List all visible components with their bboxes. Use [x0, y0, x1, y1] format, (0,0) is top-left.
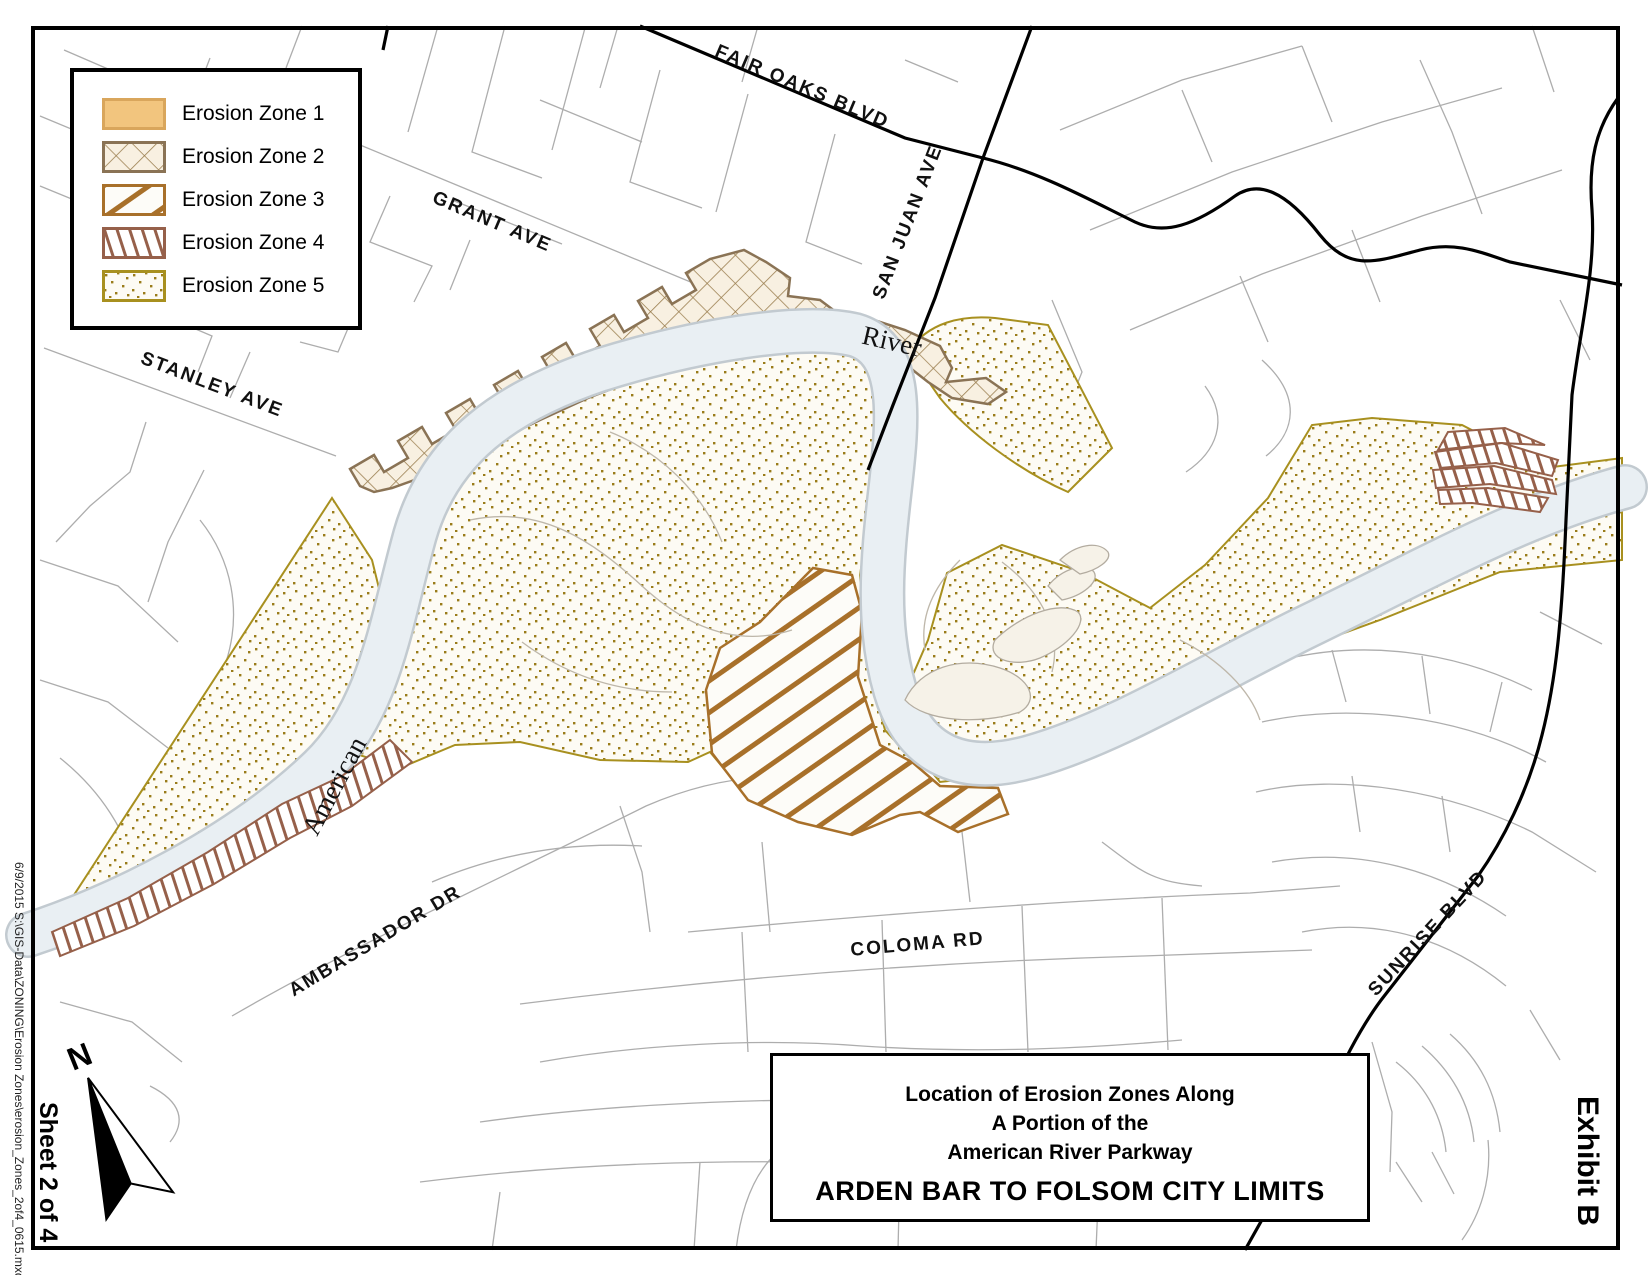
filepath-label: 6/9/2015 S:\GIS-Data\ZONING\Erosion Zone… — [12, 862, 26, 1275]
exhibit-label: Exhibit B — [1570, 1096, 1604, 1226]
title-block: Location of Erosion Zones Along A Portio… — [770, 1053, 1370, 1222]
title-line-2: A Portion of the — [773, 1109, 1367, 1138]
title-line-3: American River Parkway — [773, 1138, 1367, 1167]
legend-label: Erosion Zone 3 — [182, 188, 324, 212]
title-main: ARDEN BAR TO FOLSOM CITY LIMITS — [773, 1176, 1367, 1207]
legend-item-zone4: Erosion Zone 4 — [102, 221, 358, 264]
map-page: FAIR OAKS BLVD SAN JUAN AVE GRANT AVE ST… — [0, 0, 1650, 1275]
zone2-swatch-icon — [102, 141, 166, 173]
zone5-swatch-icon — [102, 270, 166, 302]
legend-label: Erosion Zone 4 — [182, 231, 324, 255]
legend-label: Erosion Zone 1 — [182, 102, 324, 126]
legend-item-zone3: Erosion Zone 3 — [102, 178, 358, 221]
legend-box: Erosion Zone 1 Erosion Zone 2 Erosion Zo… — [70, 68, 362, 330]
legend-label: Erosion Zone 2 — [182, 145, 324, 169]
title-line-1: Location of Erosion Zones Along — [773, 1080, 1367, 1109]
zone4-swatch-icon — [102, 227, 166, 259]
sheet-number-label: Sheet 2 of 4 — [33, 1102, 62, 1242]
legend-item-zone1: Erosion Zone 1 — [102, 92, 358, 135]
legend-label: Erosion Zone 5 — [182, 274, 324, 298]
legend-item-zone2: Erosion Zone 2 — [102, 135, 358, 178]
zone1-swatch-icon — [102, 98, 166, 130]
zone3-swatch-icon — [102, 184, 166, 216]
legend-item-zone5: Erosion Zone 5 — [102, 264, 358, 307]
